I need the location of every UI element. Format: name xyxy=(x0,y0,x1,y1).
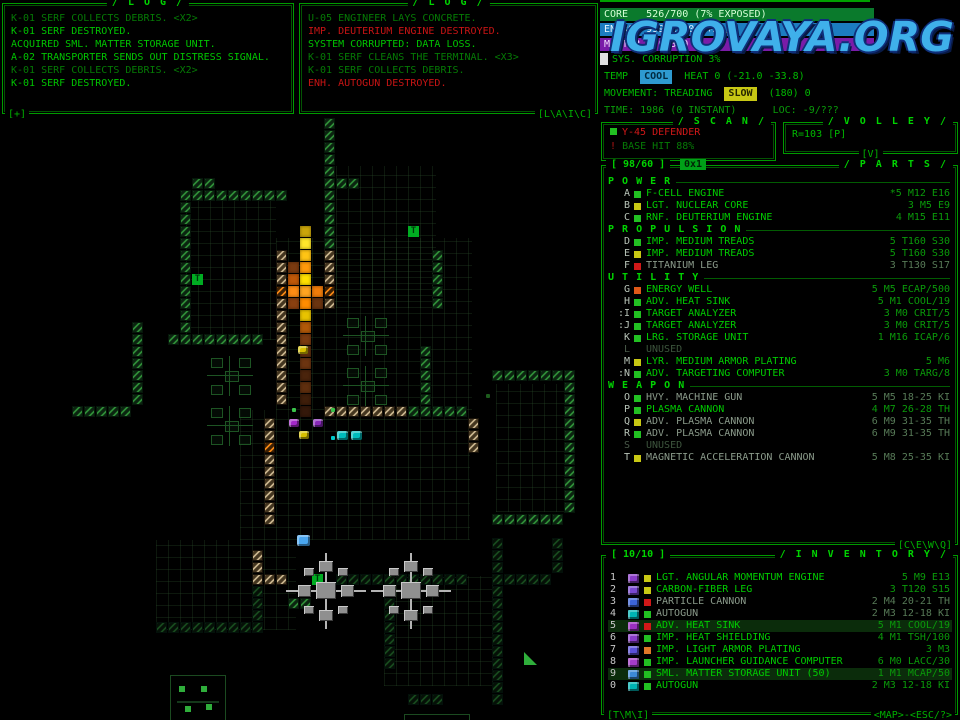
location-value: LOC: -9/??? xyxy=(773,105,839,116)
parts-section-header: P O W E R xyxy=(608,176,952,188)
part-name: Adv. Plasma Cannon xyxy=(646,416,872,428)
wall-tile-green[interactable] xyxy=(324,226,335,237)
wall-tile-green[interactable] xyxy=(180,238,191,249)
wall-tile-dim[interactable] xyxy=(552,550,563,561)
wall-tile[interactable] xyxy=(276,574,287,585)
map-viewport[interactable]: TTT xyxy=(0,118,600,720)
machine-bar xyxy=(177,701,219,703)
inventory-row[interactable]: 5Adv. Heat Sink5 M1 COOL/19 xyxy=(608,620,952,632)
wall-tile-dim[interactable] xyxy=(180,622,191,633)
parts-section-name: P O W E R xyxy=(608,176,671,188)
wall-tile[interactable] xyxy=(264,454,275,465)
wall-tile-green[interactable] xyxy=(228,334,239,345)
wall-tile-green[interactable] xyxy=(564,466,575,477)
wall-tile-green[interactable] xyxy=(420,394,431,405)
machine-block xyxy=(423,606,433,614)
wall-tile-green[interactable] xyxy=(564,382,575,393)
parts-row[interactable]: SUnused xyxy=(608,440,952,452)
wall-tile-green[interactable] xyxy=(492,514,503,525)
wall-tile[interactable] xyxy=(264,502,275,513)
section-rule xyxy=(676,182,950,183)
wall-tile-green[interactable] xyxy=(168,334,179,345)
machine-dim[interactable] xyxy=(343,316,389,356)
parts-row[interactable]: PPlasma Cannon4 M7 26-28 TH xyxy=(608,404,952,416)
item-stats: 6 M0 LACC/30 xyxy=(878,656,952,668)
parts-row[interactable]: AF-Cell Engine*5 M12 E16 xyxy=(608,188,952,200)
parts-row[interactable]: CRnf. Deuterium Engine4 M15 E11 xyxy=(608,212,952,224)
wall-tile-dim[interactable] xyxy=(492,646,503,657)
wall-tile-green[interactable] xyxy=(192,178,203,189)
inventory-row[interactable]: 0Autogun2 M3 12-18 KI xyxy=(608,680,952,692)
machine-part xyxy=(347,368,359,378)
wall-tile-green[interactable] xyxy=(180,250,191,261)
wall-tile-dim[interactable] xyxy=(492,634,503,645)
wall-tile-green[interactable] xyxy=(432,250,443,261)
machine-block xyxy=(319,610,333,621)
wall-tile[interactable] xyxy=(276,322,287,333)
wall-tile-green[interactable] xyxy=(432,262,443,273)
wall-tile[interactable] xyxy=(372,406,383,417)
wall-tile[interactable] xyxy=(468,430,479,441)
inventory-row[interactable]: 6Imp. Heat Shielding4 M1 TSH/100 xyxy=(608,632,952,644)
machine-part xyxy=(375,318,387,328)
wall-tile-green[interactable] xyxy=(324,214,335,225)
wall-tile-dim[interactable] xyxy=(516,574,527,585)
trap-tile[interactable]: T xyxy=(408,226,419,237)
wall-tile-dim[interactable] xyxy=(216,622,227,633)
parts-row[interactable]: :JTarget Analyzer3 M0 CRIT/5 xyxy=(608,320,952,332)
wall-tile-green[interactable] xyxy=(252,190,263,201)
wall-tile[interactable] xyxy=(276,394,287,405)
item-name: Autogun xyxy=(656,608,872,620)
wall-tile-dim[interactable] xyxy=(228,622,239,633)
item-condition-square xyxy=(644,599,651,606)
wall-tile-green[interactable] xyxy=(180,334,191,345)
wall-tile-green[interactable] xyxy=(180,298,191,309)
item-sprite[interactable] xyxy=(298,346,308,354)
wall-tile-green[interactable] xyxy=(564,418,575,429)
wall-tile-green[interactable] xyxy=(180,322,191,333)
wall-tile[interactable] xyxy=(252,574,263,585)
wall-tile-green[interactable] xyxy=(84,406,95,417)
item-stats: 3 M3 xyxy=(926,644,952,656)
wall-tile[interactable] xyxy=(276,370,287,381)
wall-tile-green[interactable] xyxy=(564,430,575,441)
wall-tile[interactable] xyxy=(276,334,287,345)
wall-tile-dim[interactable] xyxy=(492,598,503,609)
wall-tile[interactable] xyxy=(276,298,287,309)
wall-tile-green[interactable] xyxy=(324,166,335,177)
wall-tile-green[interactable] xyxy=(564,370,575,381)
wall-tile-dim[interactable] xyxy=(204,622,215,633)
wall-tile-dim[interactable] xyxy=(492,658,503,669)
wall-tile-dim[interactable] xyxy=(432,694,443,705)
wall-tile-green[interactable] xyxy=(132,382,143,393)
wall-tile-green[interactable] xyxy=(432,298,443,309)
part-condition-square xyxy=(634,419,641,426)
wall-tile-dim[interactable] xyxy=(504,574,515,585)
part-stats: 5 M8 25-35 KI xyxy=(872,452,952,464)
movement-detail: (180) 0 xyxy=(769,88,811,99)
log-left-body: K-01 Serf collects debris. <x2>K-01 Serf… xyxy=(11,12,287,90)
machine-part xyxy=(207,425,253,426)
cyan-robot[interactable] xyxy=(337,431,348,440)
wall-tile-green[interactable] xyxy=(204,334,215,345)
part-slot-key: A xyxy=(608,188,634,200)
parts-row[interactable]: MLyr. Medium Armor Plating5 M6 xyxy=(608,356,952,368)
part-stats: 5 M5 ECAP/500 xyxy=(872,284,952,296)
wall-tile[interactable] xyxy=(276,346,287,357)
wall-tile-dim[interactable] xyxy=(252,622,263,633)
wall-tile-green[interactable] xyxy=(108,406,119,417)
inventory-row[interactable]: 9Sml. Matter Storage Unit (50)1 M1 MCAP/… xyxy=(608,668,952,680)
wall-tile-green[interactable] xyxy=(504,514,515,525)
wall-tile-green[interactable] xyxy=(180,286,191,297)
wall-tile-dim[interactable] xyxy=(456,574,467,585)
parts-row[interactable]: GEnergy Well5 M5 ECAP/500 xyxy=(608,284,952,296)
wall-tile[interactable] xyxy=(276,250,287,261)
log-line: K-01 Serf cleans the Terminal. <x3> xyxy=(308,51,591,64)
inventory-row[interactable]: 8Imp. Launcher Guidance Computer6 M0 LAC… xyxy=(608,656,952,668)
parts-row[interactable]: BLgt. Nuclear Core3 M5 E9 xyxy=(608,200,952,212)
wall-tile-green[interactable] xyxy=(420,370,431,381)
wall-tile-green[interactable] xyxy=(216,190,227,201)
wall-tile-green[interactable] xyxy=(552,370,563,381)
wall-tile[interactable] xyxy=(264,514,275,525)
wall-tile-green[interactable] xyxy=(516,370,527,381)
machine-dim[interactable] xyxy=(343,366,389,406)
wall-tile-dim[interactable] xyxy=(492,586,503,597)
wall-tile-dim[interactable] xyxy=(528,574,539,585)
wall-tile-dim[interactable] xyxy=(492,538,503,549)
machine-part xyxy=(211,408,223,418)
wall-tile[interactable] xyxy=(252,562,263,573)
wall-tile-green[interactable] xyxy=(564,394,575,405)
wall-tile-green[interactable] xyxy=(240,334,251,345)
parts-row[interactable]: FTitanium Leg3 T130 S17 xyxy=(608,260,952,272)
wall-tile-green[interactable] xyxy=(120,406,131,417)
wall-tile-green[interactable] xyxy=(180,190,191,201)
wall-tile-green[interactable] xyxy=(180,214,191,225)
machine-part xyxy=(239,435,251,445)
wall-tile[interactable] xyxy=(396,406,407,417)
door-tile[interactable] xyxy=(264,442,275,453)
item-sprite[interactable] xyxy=(289,419,299,427)
machine-part xyxy=(361,381,375,392)
parts-multiplier-badge[interactable]: 0x1 xyxy=(680,159,706,170)
wall-tile-dim[interactable] xyxy=(444,574,455,585)
wall-tile-dim[interactable] xyxy=(168,622,179,633)
wall-tile-green[interactable] xyxy=(348,178,359,189)
wall-tile-dim[interactable] xyxy=(420,694,431,705)
wall-tile-green[interactable] xyxy=(420,358,431,369)
parts-row[interactable]: LUnused xyxy=(608,344,952,356)
machine-dim[interactable] xyxy=(207,406,253,446)
wall-tile-dim[interactable] xyxy=(384,658,395,669)
wall-tile-green[interactable] xyxy=(180,262,191,273)
item-name: Imp. Heat Shielding xyxy=(656,632,878,644)
wall-tile-green[interactable] xyxy=(564,454,575,465)
wall-tile-dim[interactable] xyxy=(408,694,419,705)
scan-hit-text: BASE HIT 88% xyxy=(622,141,694,152)
part-stats: 5 T160 S30 xyxy=(890,248,952,260)
wall-tile-green[interactable] xyxy=(420,406,431,417)
part-name: Adv. Targeting Computer xyxy=(646,368,884,380)
parts-section-name: U T I L I T Y xyxy=(608,272,699,284)
parts-row[interactable]: DImp. Medium Treads5 T160 S30 xyxy=(608,236,952,248)
wall-tile[interactable] xyxy=(384,406,395,417)
wall-tile-green[interactable] xyxy=(456,406,467,417)
wall-tile-dim[interactable] xyxy=(492,550,503,561)
part-name: Target Analyzer xyxy=(646,320,884,332)
machine-part xyxy=(239,385,251,395)
wall-tile[interactable] xyxy=(264,478,275,489)
fire-tile xyxy=(300,262,311,273)
wall-tile-green[interactable] xyxy=(432,406,443,417)
wall-tile-green[interactable] xyxy=(132,370,143,381)
inventory-row[interactable]: 4Autogun2 M3 12-18 KI xyxy=(608,608,952,620)
part-condition-square xyxy=(634,335,641,342)
wall-tile-green[interactable] xyxy=(264,190,275,201)
wall-tile[interactable] xyxy=(276,274,287,285)
parts-row[interactable]: :ITarget Analyzer3 M0 CRIT/5 xyxy=(608,308,952,320)
wall-tile[interactable] xyxy=(264,430,275,441)
wall-tile-green[interactable] xyxy=(528,370,539,381)
wall-tile-dim[interactable] xyxy=(360,574,371,585)
parts-row[interactable]: RAdv. Plasma Cannon6 M9 31-35 TH xyxy=(608,428,952,440)
fire-tile xyxy=(288,286,299,297)
machine-gray[interactable] xyxy=(383,561,439,621)
scan-target-row[interactable]: Y-45 DEFENDER xyxy=(610,127,700,138)
wall-tile[interactable] xyxy=(264,466,275,477)
volley-title: / V O L L E Y / xyxy=(823,116,953,127)
door-tile[interactable] xyxy=(276,286,287,297)
wall-tile-green[interactable] xyxy=(180,274,191,285)
section-rule xyxy=(746,230,950,231)
inventory-row[interactable]: 1Lgt. Angular Momentum Engine5 M9 E13 xyxy=(608,572,952,584)
wall-tile-green[interactable] xyxy=(324,130,335,141)
wall-tile-green[interactable] xyxy=(228,190,239,201)
wall-tile-green[interactable] xyxy=(180,226,191,237)
wall-tile[interactable] xyxy=(324,298,335,309)
wall-tile-dim[interactable] xyxy=(240,622,251,633)
wall-tile-green[interactable] xyxy=(252,334,263,345)
hud-top-line xyxy=(600,0,870,2)
debris-triangle xyxy=(524,652,537,665)
item-sprite-icon xyxy=(628,622,639,631)
wall-tile-green[interactable] xyxy=(180,310,191,321)
log-panel-right: / L O G / U-05 Engineer lays Concrete.Im… xyxy=(299,3,598,114)
log-line: K-01 Serf collects debris. <x2> xyxy=(11,64,287,77)
wall-tile-dim[interactable] xyxy=(252,598,263,609)
wall-tile-dim[interactable] xyxy=(384,646,395,657)
wall-tile-dim[interactable] xyxy=(192,622,203,633)
wall-tile-green[interactable] xyxy=(564,478,575,489)
wall-tile[interactable] xyxy=(276,262,287,273)
part-stats: 5 M1 COOL/19 xyxy=(878,296,952,308)
wall-tile-green[interactable] xyxy=(72,406,83,417)
parts-row[interactable]: HAdv. Heat Sink5 M1 COOL/19 xyxy=(608,296,952,308)
item-condition-square xyxy=(644,623,651,630)
machine-part xyxy=(225,371,239,382)
wall-tile[interactable] xyxy=(324,274,335,285)
parts-row[interactable]: QAdv. Plasma Cannon6 M9 31-35 TH xyxy=(608,416,952,428)
wall-tile-green[interactable] xyxy=(552,514,563,525)
wall-tile-green[interactable] xyxy=(528,514,539,525)
part-stats: 3 T130 S17 xyxy=(890,260,952,272)
wall-tile-dim[interactable] xyxy=(492,682,503,693)
wall-tile-green[interactable] xyxy=(132,322,143,333)
inventory-row[interactable]: 7Imp. Light Armor Plating3 M3 xyxy=(608,644,952,656)
machine-gray[interactable] xyxy=(298,561,354,621)
item-sprite[interactable] xyxy=(313,419,323,427)
wall-tile-green[interactable] xyxy=(324,190,335,201)
wall-tile-green[interactable] xyxy=(132,346,143,357)
wall-tile-green[interactable] xyxy=(96,406,107,417)
parts-row[interactable]: TMagnetic Acceleration Cannon5 M8 25-35 … xyxy=(608,452,952,464)
wall-tile-green[interactable] xyxy=(420,382,431,393)
wall-tile-green[interactable] xyxy=(324,202,335,213)
wall-tile-dim[interactable] xyxy=(492,610,503,621)
wall-tile-green[interactable] xyxy=(276,190,287,201)
wall-tile-green[interactable] xyxy=(192,190,203,201)
wall-tile[interactable] xyxy=(276,382,287,393)
inventory-row[interactable]: 2Carbon-fiber Leg3 T120 S15 xyxy=(608,584,952,596)
wall-tile-dim[interactable] xyxy=(252,586,263,597)
wall-tile[interactable] xyxy=(348,406,359,417)
wall-tile-dim[interactable] xyxy=(492,670,503,681)
wall-tile-green[interactable] xyxy=(444,406,455,417)
item-stats: 3 T120 S15 xyxy=(890,584,952,596)
wall-tile[interactable] xyxy=(264,490,275,501)
item-name: Autogun xyxy=(656,680,872,692)
wall-tile-dim[interactable] xyxy=(492,694,503,705)
wall-tile[interactable] xyxy=(264,418,275,429)
parts-row[interactable]: KLrg. Storage Unit1 M16 ICAP/6 xyxy=(608,332,952,344)
wall-tile-green[interactable] xyxy=(564,490,575,501)
parts-row[interactable]: :NAdv. Targeting Computer3 M0 TARG/8 xyxy=(608,368,952,380)
part-slot-key: E xyxy=(608,248,634,260)
scan-hit-row: ! BASE HIT 88% xyxy=(610,141,694,152)
machine-part xyxy=(239,408,251,418)
wall-tile-dim[interactable] xyxy=(384,634,395,645)
wall-tile[interactable] xyxy=(336,406,347,417)
part-slot-key: F xyxy=(608,260,634,272)
machine-block xyxy=(319,561,333,572)
wall-tile-green[interactable] xyxy=(408,406,419,417)
wall-tile[interactable] xyxy=(468,442,479,453)
machine-part xyxy=(365,316,366,356)
parts-row[interactable]: OHvy. Machine Gun5 M5 18-25 KI xyxy=(608,392,952,404)
machine-block xyxy=(383,585,396,597)
inventory-row[interactable]: 3Particle Cannon2 M4 20-21 TH xyxy=(608,596,952,608)
wall-tile-green[interactable] xyxy=(432,286,443,297)
item-sprite[interactable] xyxy=(299,431,309,439)
machine-part xyxy=(239,358,251,368)
wall-tile-dim[interactable] xyxy=(492,622,503,633)
floor-area xyxy=(156,540,296,630)
wall-tile-green[interactable] xyxy=(132,394,143,405)
inventory-sort-button[interactable]: [T\M\I] xyxy=(604,710,652,720)
wall-tile-green[interactable] xyxy=(564,502,575,513)
wall-tile-green[interactable] xyxy=(564,406,575,417)
wall-tile-green[interactable] xyxy=(216,334,227,345)
wall-tile-green[interactable] xyxy=(324,142,335,153)
machine-dim[interactable] xyxy=(207,356,253,396)
wall-tile-dim[interactable] xyxy=(552,562,563,573)
inventory-slot-key: 7 xyxy=(608,644,628,656)
wall-tile-green[interactable] xyxy=(540,514,551,525)
part-condition-square xyxy=(634,371,641,378)
part-name: Rnf. Deuterium Engine xyxy=(646,212,896,224)
wall-tile[interactable] xyxy=(252,550,263,561)
wall-tile[interactable] xyxy=(276,310,287,321)
wall-tile-dim[interactable] xyxy=(384,622,395,633)
map-esc-buttons[interactable]: <MAP>-<ESC/?> xyxy=(871,710,955,720)
wall-tile-green[interactable] xyxy=(132,358,143,369)
parts-row[interactable]: EImp. Medium Treads5 T160 S30 xyxy=(608,248,952,260)
wall-tile-green[interactable] xyxy=(432,274,443,285)
wall-tile[interactable] xyxy=(360,406,371,417)
wall-tile-green[interactable] xyxy=(180,202,191,213)
wall-tile-dim[interactable] xyxy=(252,610,263,621)
log-right-title: / L O G / xyxy=(407,0,489,8)
wall-tile-dim[interactable] xyxy=(372,574,383,585)
wall-tile-green[interactable] xyxy=(516,514,527,525)
time-value: TIME: 1986 (0 INSTANT) xyxy=(604,105,736,116)
wall-tile-green[interactable] xyxy=(324,178,335,189)
wall-tile-green[interactable] xyxy=(324,118,335,129)
wall-tile-green[interactable] xyxy=(204,178,215,189)
map-dot xyxy=(292,408,296,412)
wall-tile-green[interactable] xyxy=(492,370,503,381)
wall-tile-dim[interactable] xyxy=(156,622,167,633)
item-sprite-icon xyxy=(628,574,639,583)
wall-tile-green[interactable] xyxy=(324,238,335,249)
wall-tile-green[interactable] xyxy=(336,178,347,189)
wall-tile[interactable] xyxy=(324,262,335,273)
machine-part xyxy=(211,358,223,368)
wall-tile-green[interactable] xyxy=(204,190,215,201)
wall-tile-dim[interactable] xyxy=(492,562,503,573)
cyan-robot[interactable] xyxy=(351,431,362,440)
wall-tile-green[interactable] xyxy=(564,442,575,453)
wall-tile-green[interactable] xyxy=(504,370,515,381)
part-name: Plasma Cannon xyxy=(646,404,872,416)
wall-tile[interactable] xyxy=(468,418,479,429)
wall-tile-dim[interactable] xyxy=(552,538,563,549)
wall-tile-dim[interactable] xyxy=(492,574,503,585)
wall-tile-green[interactable] xyxy=(240,190,251,201)
door-tile[interactable] xyxy=(324,286,335,297)
wall-tile[interactable] xyxy=(264,574,275,585)
machine-nodes[interactable] xyxy=(170,675,226,720)
parts-section-header: W E A P O N xyxy=(608,380,952,392)
wall-tile-green[interactable] xyxy=(540,370,551,381)
wall-tile-green[interactable] xyxy=(132,334,143,345)
player-robot[interactable] xyxy=(297,535,310,546)
wall-tile-green[interactable] xyxy=(324,154,335,165)
wall-tile-dim[interactable] xyxy=(540,574,551,585)
machine-part xyxy=(229,356,230,396)
wall-tile[interactable] xyxy=(324,250,335,261)
machine-nodes[interactable] xyxy=(404,714,470,720)
trap-tile[interactable]: T xyxy=(192,274,203,285)
wall-tile-green[interactable] xyxy=(192,334,203,345)
wall-tile-green[interactable] xyxy=(420,346,431,357)
item-stats: 4 M1 TSH/100 xyxy=(878,632,952,644)
wall-tile[interactable] xyxy=(276,358,287,369)
